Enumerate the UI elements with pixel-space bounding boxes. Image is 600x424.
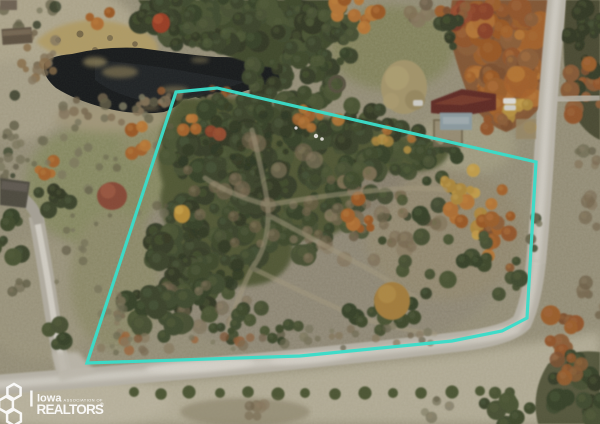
svg-text:®: ®: [100, 402, 104, 409]
svg-text:REALTORS: REALTORS: [37, 402, 104, 417]
